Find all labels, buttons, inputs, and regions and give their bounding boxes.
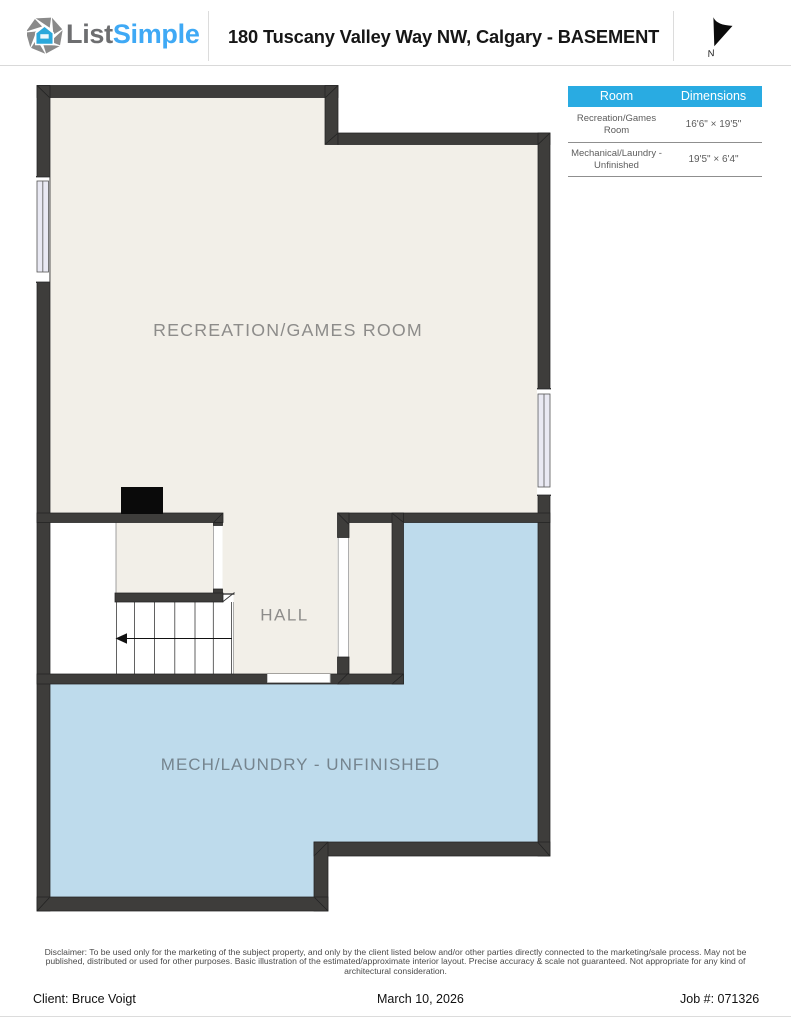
svg-text:MECH/LAUNDRY - UNFINISHED: MECH/LAUNDRY - UNFINISHED — [161, 755, 440, 774]
svg-text:RECREATION/GAMES ROOM: RECREATION/GAMES ROOM — [153, 320, 423, 340]
svg-text:HALL: HALL — [260, 606, 309, 625]
